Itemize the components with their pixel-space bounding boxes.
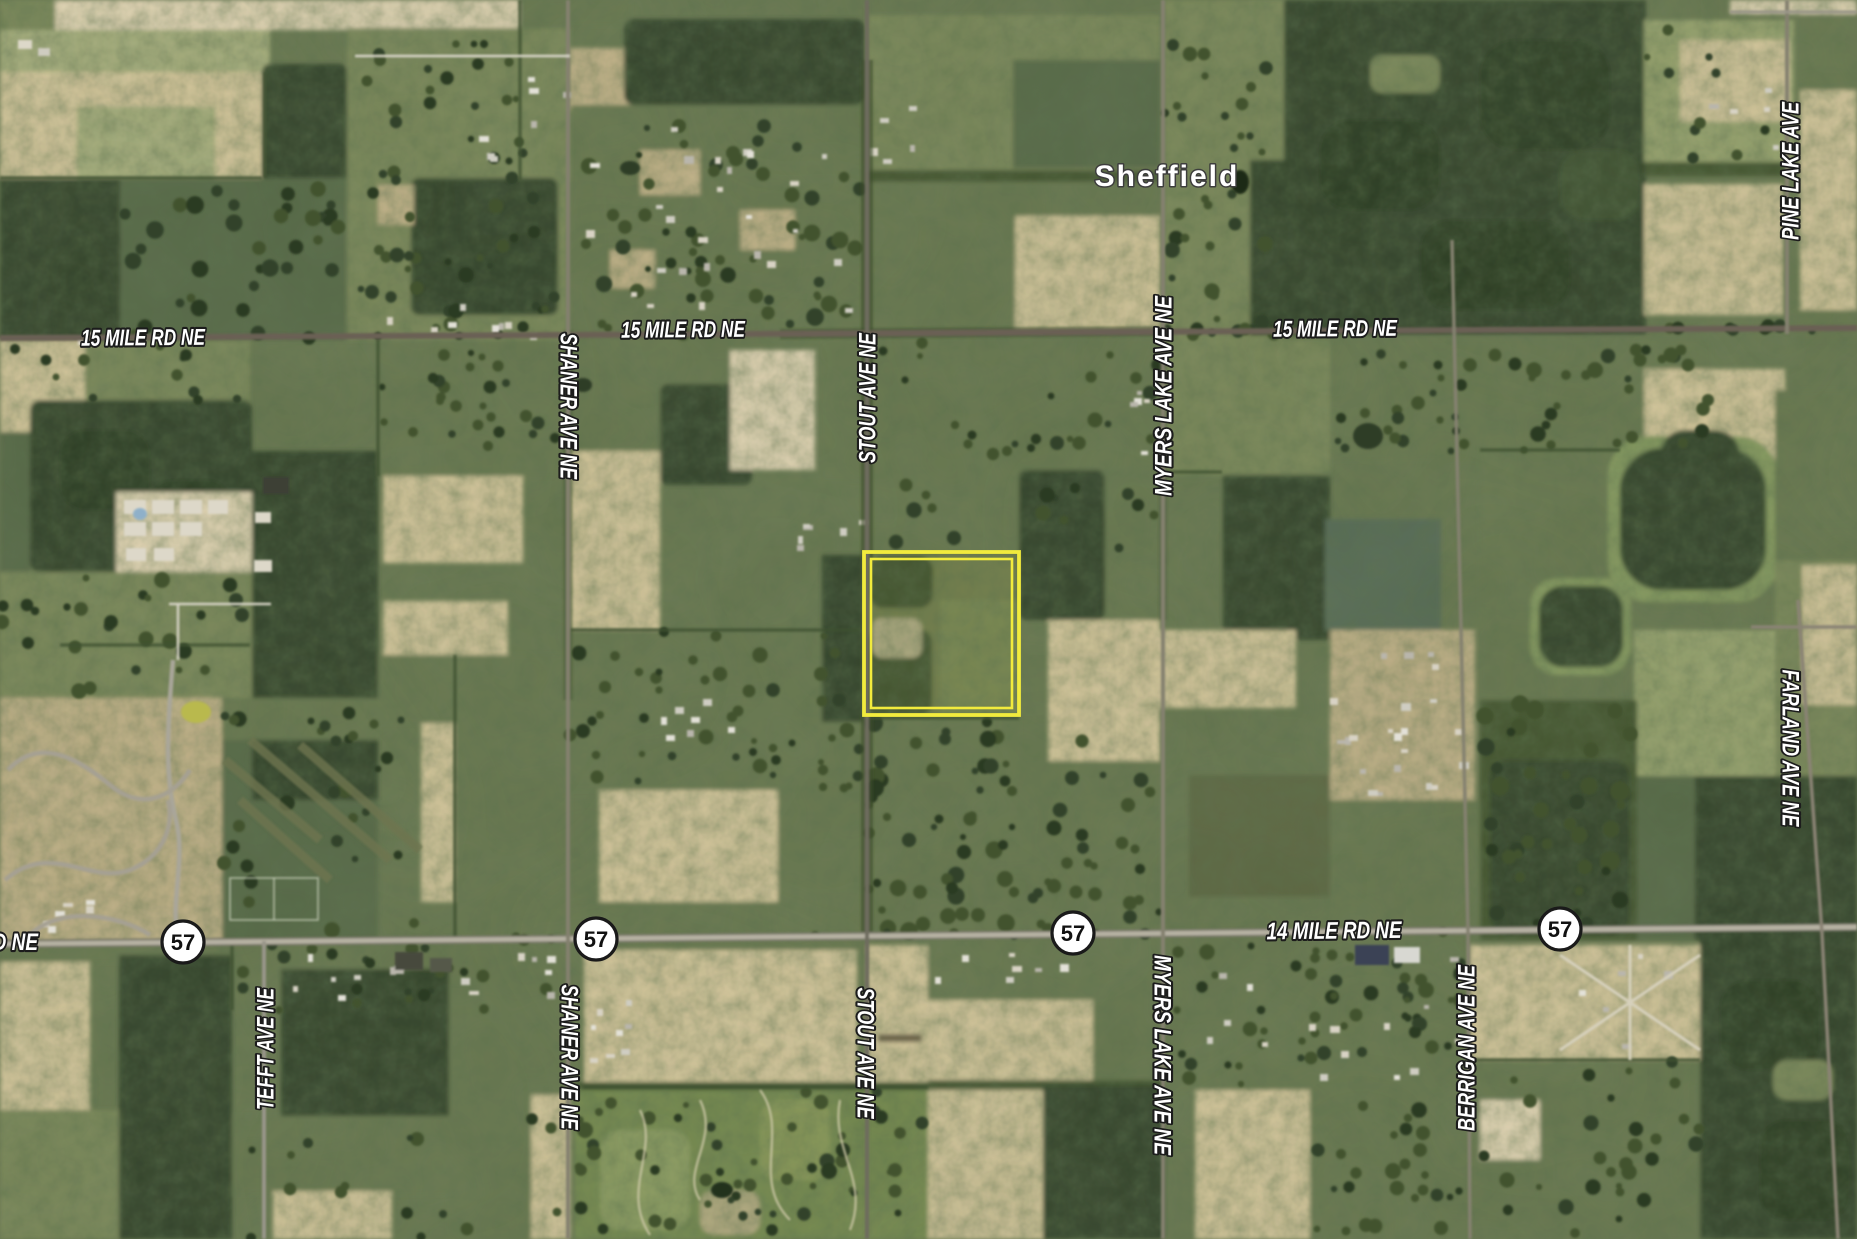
svg-text:14 MILE RD NE: 14 MILE RD NE xyxy=(1266,917,1402,945)
svg-text:57: 57 xyxy=(171,930,195,955)
svg-text:MYERS LAKE AVE NE: MYERS LAKE AVE NE xyxy=(1148,955,1175,1156)
svg-text:SHANER AVE NE: SHANER AVE NE xyxy=(554,333,581,480)
svg-text:57: 57 xyxy=(1061,921,1085,946)
svg-text:TEFFT AVE NE: TEFFT AVE NE xyxy=(253,987,280,1110)
svg-text:STOUT AVE NE: STOUT AVE NE xyxy=(855,332,882,463)
svg-text:BERRIGAN AVE NE: BERRIGAN AVE NE xyxy=(1454,964,1481,1131)
svg-text:PINE LAKE AVE: PINE LAKE AVE xyxy=(1778,101,1805,240)
svg-text:MYERS LAKE AVE NE: MYERS LAKE AVE NE xyxy=(1151,295,1178,496)
svg-text:15 MILE RD NE: 15 MILE RD NE xyxy=(1273,315,1398,342)
svg-text:57: 57 xyxy=(584,927,608,952)
svg-text:FARLAND AVE NE: FARLAND AVE NE xyxy=(1776,670,1803,828)
svg-text:14 MILE RD NE: 14 MILE RD NE xyxy=(0,929,39,956)
svg-text:Sheffield: Sheffield xyxy=(1095,160,1240,193)
svg-text:15 MILE RD NE: 15 MILE RD NE xyxy=(621,316,746,343)
svg-text:15 MILE RD NE: 15 MILE RD NE xyxy=(81,324,206,351)
svg-text:SHANER AVE NE: SHANER AVE NE xyxy=(555,985,582,1131)
svg-text:STOUT AVE NE: STOUT AVE NE xyxy=(851,988,878,1120)
svg-text:57: 57 xyxy=(1548,917,1572,942)
